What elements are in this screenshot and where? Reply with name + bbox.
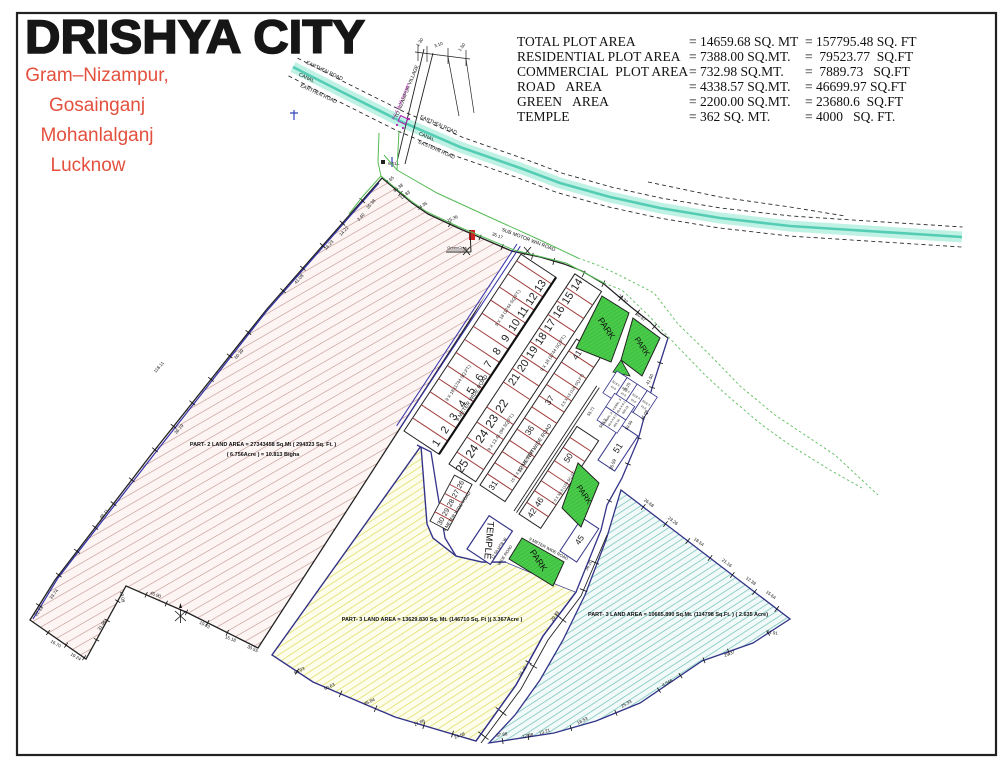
svg-text:PART- 3 LAND AREA = 10665.890: PART- 3 LAND AREA = 10665.890 Sq.Mt. (11… — [588, 612, 768, 618]
svg-text:Gosainganj: Gosainganj — [49, 95, 145, 116]
svg-text:GreenCres: GreenCres — [447, 245, 467, 250]
svg-text:= 14659.68 SQ. MT: = 14659.68 SQ. MT — [689, 34, 799, 49]
svg-text:RESIDENTIAL PLOT AREA: RESIDENTIAL PLOT AREA — [517, 49, 681, 64]
svg-text:TOTAL PLOT AREA: TOTAL PLOT AREA — [517, 34, 636, 49]
svg-text:TEMPLE: TEMPLE — [517, 109, 570, 124]
svg-text:GREEN AREA: GREEN AREA — [517, 94, 609, 109]
svg-text:= 2200.00 SQ.MT.: = 2200.00 SQ.MT. — [689, 94, 791, 109]
svg-text:PART- 3 LAND AREA = 13629.830: PART- 3 LAND AREA = 13629.830 Sq. Mt. (1… — [342, 617, 523, 623]
svg-text:= 362 SQ. MT.: = 362 SQ. MT. — [689, 109, 770, 124]
svg-text:= 4338.57 SQ.MT.: = 4338.57 SQ.MT. — [689, 79, 791, 94]
svg-text:= 732.98 SQ.MT.: = 732.98 SQ.MT. — [689, 64, 784, 79]
svg-text:Mohanlalganj: Mohanlalganj — [40, 125, 153, 146]
svg-text:= 7388.00 SQ.MT.: = 7388.00 SQ.MT. — [689, 49, 791, 64]
svg-text:( 6.756Acre ) = 10.813 Bigha: ( 6.756Acre ) = 10.813 Bigha — [227, 452, 301, 458]
svg-text:Gram–Nizampur,: Gram–Nizampur, — [25, 65, 169, 86]
svg-text:= 7889.73 SQ.FT: = 7889.73 SQ.FT — [805, 64, 911, 79]
svg-text:= 157795.48 SQ. FT: = 157795.48 SQ. FT — [805, 34, 917, 49]
svg-text:DRISHYA CITY: DRISHYA CITY — [25, 10, 365, 63]
svg-text:= 4000 SQ. FT.: = 4000 SQ. FT. — [805, 109, 895, 124]
svg-text:PART- 2 LAND AREA = 27343458 S: PART- 2 LAND AREA = 27343458 Sq.Mt ( 294… — [190, 442, 337, 448]
svg-text:Lucknow: Lucknow — [51, 155, 126, 176]
svg-text:COMMERCIAL PLOT AREA: COMMERCIAL PLOT AREA — [517, 64, 688, 79]
svg-text:ROAD AREA: ROAD AREA — [517, 79, 602, 94]
svg-text:= 79523.77 SQ.FT: = 79523.77 SQ.FT — [805, 49, 914, 64]
svg-text:= 23680.6 SQ.FT: = 23680.6 SQ.FT — [805, 94, 904, 109]
svg-text:= 46699.97 SQ.FT: = 46699.97 SQ.FT — [805, 79, 907, 94]
